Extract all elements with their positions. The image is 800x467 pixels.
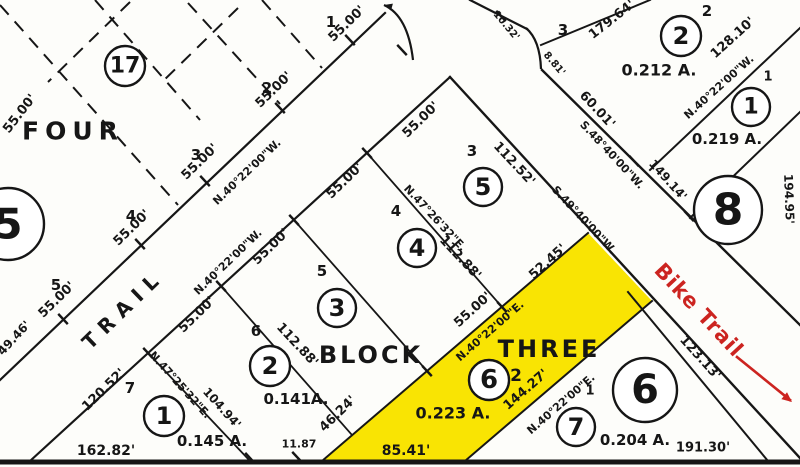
plat-map-canvas: 17586211234567FOURBLOCKTHREETRAILBike Tr… — [0, 0, 800, 467]
map-label-162-82: 162.82' — [77, 443, 135, 459]
lot-marker-5: 5 — [464, 168, 502, 206]
map-label-85-41: 85.41' — [382, 443, 431, 459]
marker-number: 5 — [0, 200, 23, 249]
marker-number: 3 — [329, 294, 346, 322]
marker-number: 2 — [262, 352, 279, 380]
map-label-6: 6 — [251, 322, 261, 340]
map-label-7: 7 — [125, 379, 135, 397]
block-four-title: FOUR — [22, 117, 124, 146]
map-label-11-87: 11.87 — [282, 438, 317, 451]
marker-number: 2 — [673, 22, 690, 50]
block-three-title-block: BLOCK — [319, 341, 423, 369]
lot-marker-1: 1 — [732, 88, 770, 126]
map-label-2: 2 — [510, 366, 522, 386]
map-label-1: 1 — [585, 384, 594, 399]
map-label-2: 2 — [262, 79, 272, 97]
lot-marker-1: 1 — [144, 396, 184, 436]
marker-number: 6 — [631, 367, 659, 413]
marker-number: 6 — [480, 365, 498, 395]
map-label-0-223-a: 0.223 A. — [416, 404, 491, 423]
marker-number: 17 — [110, 54, 141, 79]
map-label-4: 4 — [391, 202, 401, 220]
lot-marker-3: 3 — [318, 289, 356, 327]
plat-map-page: 17586211234567FOURBLOCKTHREETRAILBike Tr… — [0, 0, 800, 467]
map-label-0-141a: 0.141A. — [263, 390, 328, 408]
map-label-1: 1 — [326, 13, 336, 31]
marker-number: 7 — [568, 413, 585, 441]
highlighted-lot-marker-6: 6 — [469, 360, 509, 400]
lot-marker-4: 4 — [398, 229, 436, 267]
map-label-2: 2 — [702, 2, 712, 20]
map-label-194-95: 194.95' — [781, 174, 797, 224]
map-label-0-212-a: 0.212 A. — [622, 61, 697, 80]
block-three-title-three: THREE — [498, 335, 601, 363]
marker-number: 8 — [713, 185, 744, 236]
map-label-3: 3 — [558, 21, 568, 39]
marker-number: 1 — [156, 402, 173, 430]
lot-marker-7: 7 — [557, 408, 595, 446]
block-8-marker-8: 8 — [694, 176, 762, 244]
marker-number: 5 — [475, 173, 492, 201]
map-label-0-145-a: 0.145 A. — [177, 432, 247, 450]
map-label-191-30: 191.30' — [676, 441, 730, 456]
map-label-0-204-a: 0.204 A. — [600, 431, 670, 449]
block-6-marker-6: 6 — [613, 358, 677, 422]
map-label-3: 3 — [467, 142, 477, 160]
lot-marker-2: 2 — [250, 346, 290, 386]
map-label-3: 3 — [191, 146, 201, 164]
map-label-1: 1 — [763, 70, 772, 85]
map-label-4: 4 — [126, 207, 136, 225]
block-17-marker-17: 17 — [105, 46, 145, 86]
map-label-5: 5 — [51, 276, 61, 294]
lot-marker-2: 2 — [661, 16, 701, 56]
marker-number: 1 — [743, 95, 758, 120]
map-label-5: 5 — [317, 262, 327, 280]
marker-number: 4 — [409, 234, 426, 262]
map-label-0-219-a: 0.219 A. — [692, 130, 762, 148]
